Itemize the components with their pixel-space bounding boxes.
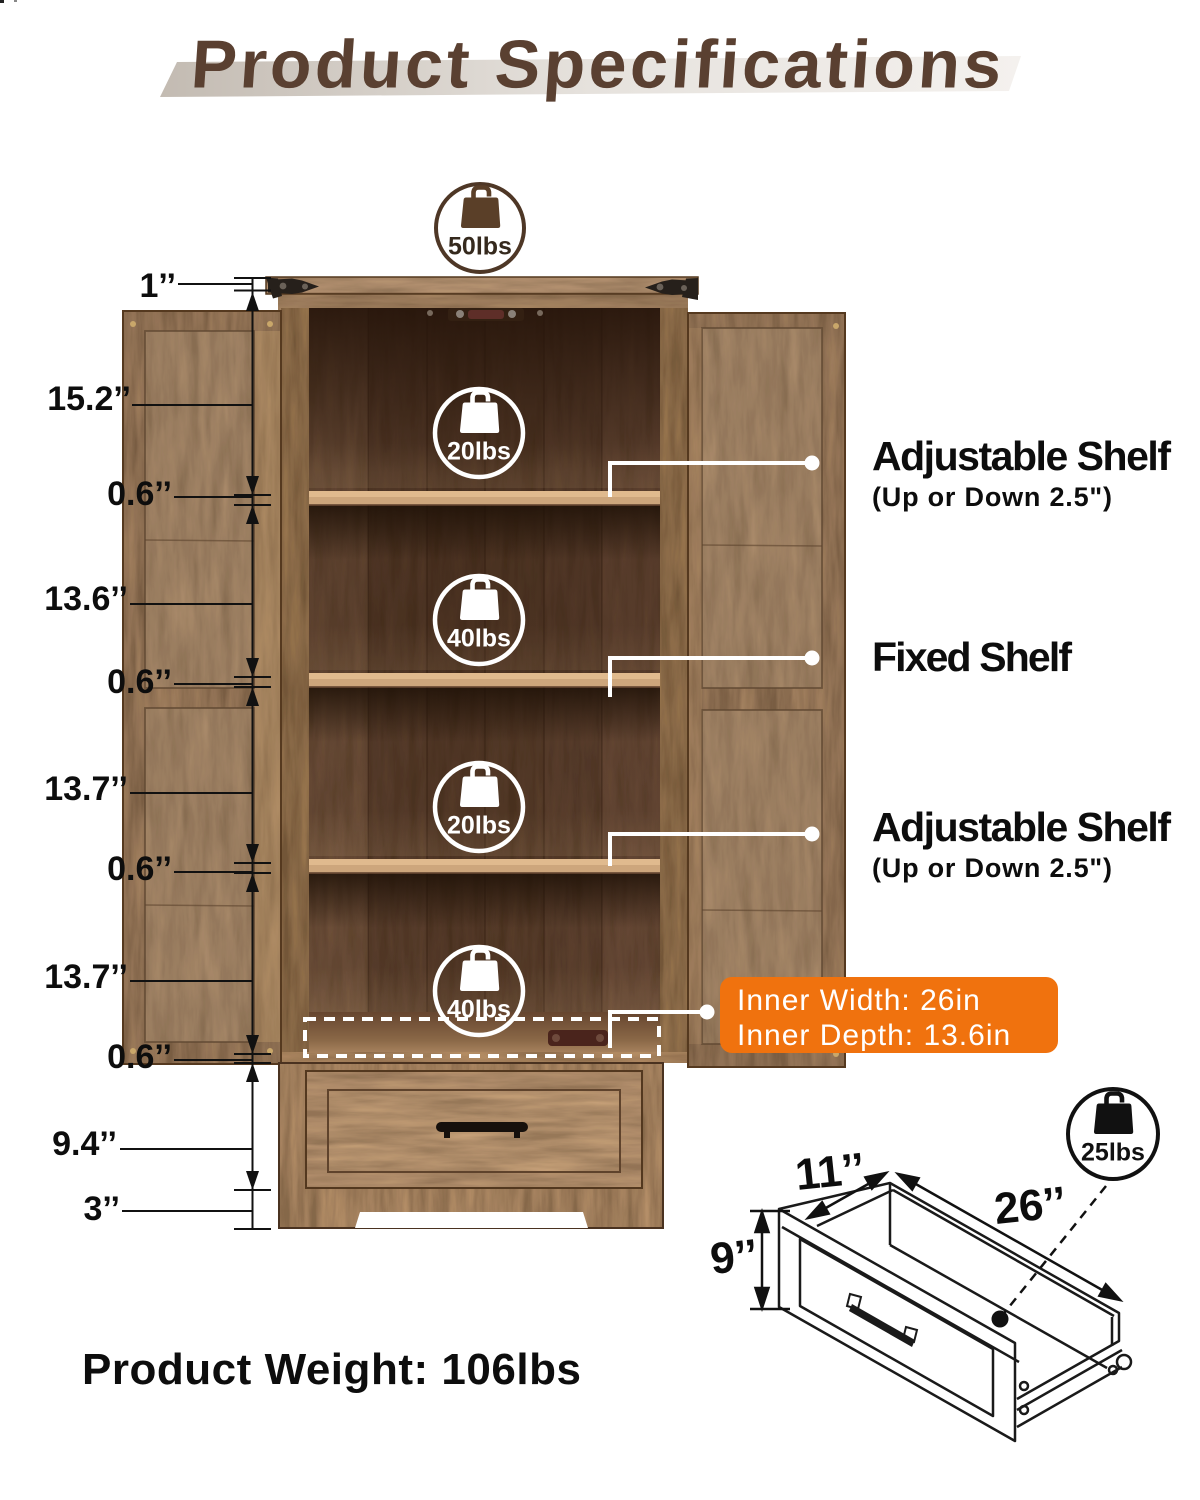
svg-text:(Up or Down 2.5"): (Up or Down 2.5") — [872, 482, 1112, 512]
svg-text:0.6’’: 0.6’’ — [107, 850, 172, 888]
svg-text:Product Weight: 106lbs: Product Weight: 106lbs — [82, 1345, 581, 1394]
svg-text:20lbs: 20lbs — [447, 438, 511, 466]
svg-text:Inner Width: 26in: Inner Width: 26in — [737, 984, 981, 1017]
svg-text:13.6’’: 13.6’’ — [44, 580, 128, 618]
svg-text:40lbs: 40lbs — [447, 996, 511, 1024]
svg-text:Inner Depth: 13.6in: Inner Depth: 13.6in — [737, 1019, 1011, 1052]
svg-text:40lbs: 40lbs — [447, 625, 511, 653]
svg-text:25lbs: 25lbs — [1081, 1139, 1145, 1167]
svg-text:1’’: 1’’ — [139, 267, 176, 305]
svg-text:Adjustable Shelf: Adjustable Shelf — [872, 804, 1171, 850]
svg-text:(Up or Down 2.5"): (Up or Down 2.5") — [872, 853, 1112, 883]
svg-text:11’’: 11’’ — [793, 1144, 867, 1200]
svg-text:50lbs: 50lbs — [448, 233, 512, 261]
svg-text:15.2’’: 15.2’’ — [47, 380, 131, 418]
svg-text:13.7’’: 13.7’’ — [44, 770, 128, 808]
svg-text:9.4’’: 9.4’’ — [52, 1125, 117, 1163]
svg-text:0.6’’: 0.6’’ — [107, 663, 172, 701]
svg-text:26’’: 26’’ — [992, 1178, 1068, 1234]
svg-text:0.6’’: 0.6’’ — [107, 475, 172, 513]
svg-text:Fixed Shelf: Fixed Shelf — [872, 634, 1072, 680]
svg-text:0.6’’: 0.6’’ — [107, 1038, 172, 1076]
svg-text:13.7’’: 13.7’’ — [44, 958, 128, 996]
svg-text:9’’: 9’’ — [708, 1230, 760, 1284]
svg-text:20lbs: 20lbs — [447, 812, 511, 840]
svg-text:3’’: 3’’ — [83, 1190, 120, 1228]
svg-text:Adjustable Shelf: Adjustable Shelf — [872, 433, 1171, 479]
